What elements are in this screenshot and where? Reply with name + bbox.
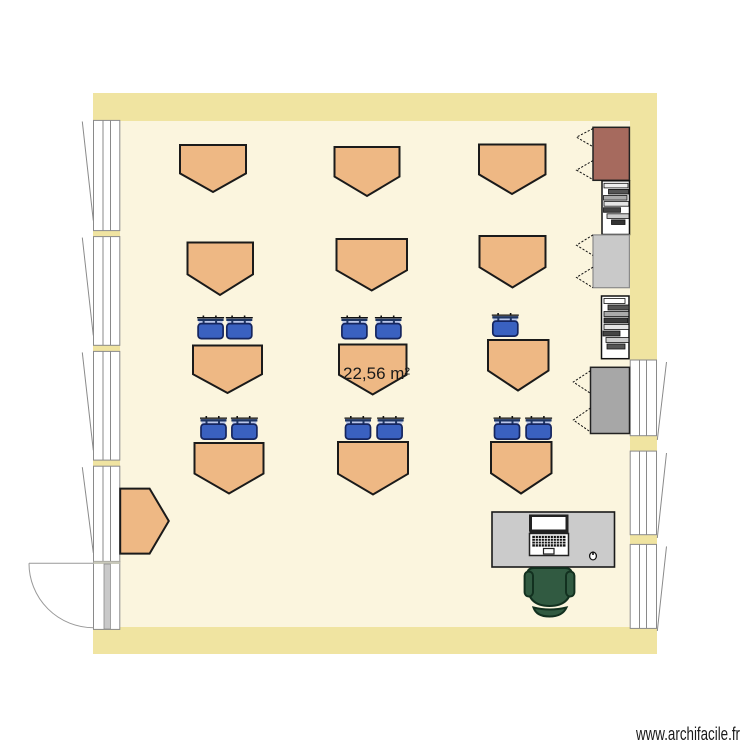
svg-text:22,56 m²: 22,56 m²: [343, 364, 410, 383]
svg-text:www.archifacile.fr: www.archifacile.fr: [635, 724, 740, 744]
